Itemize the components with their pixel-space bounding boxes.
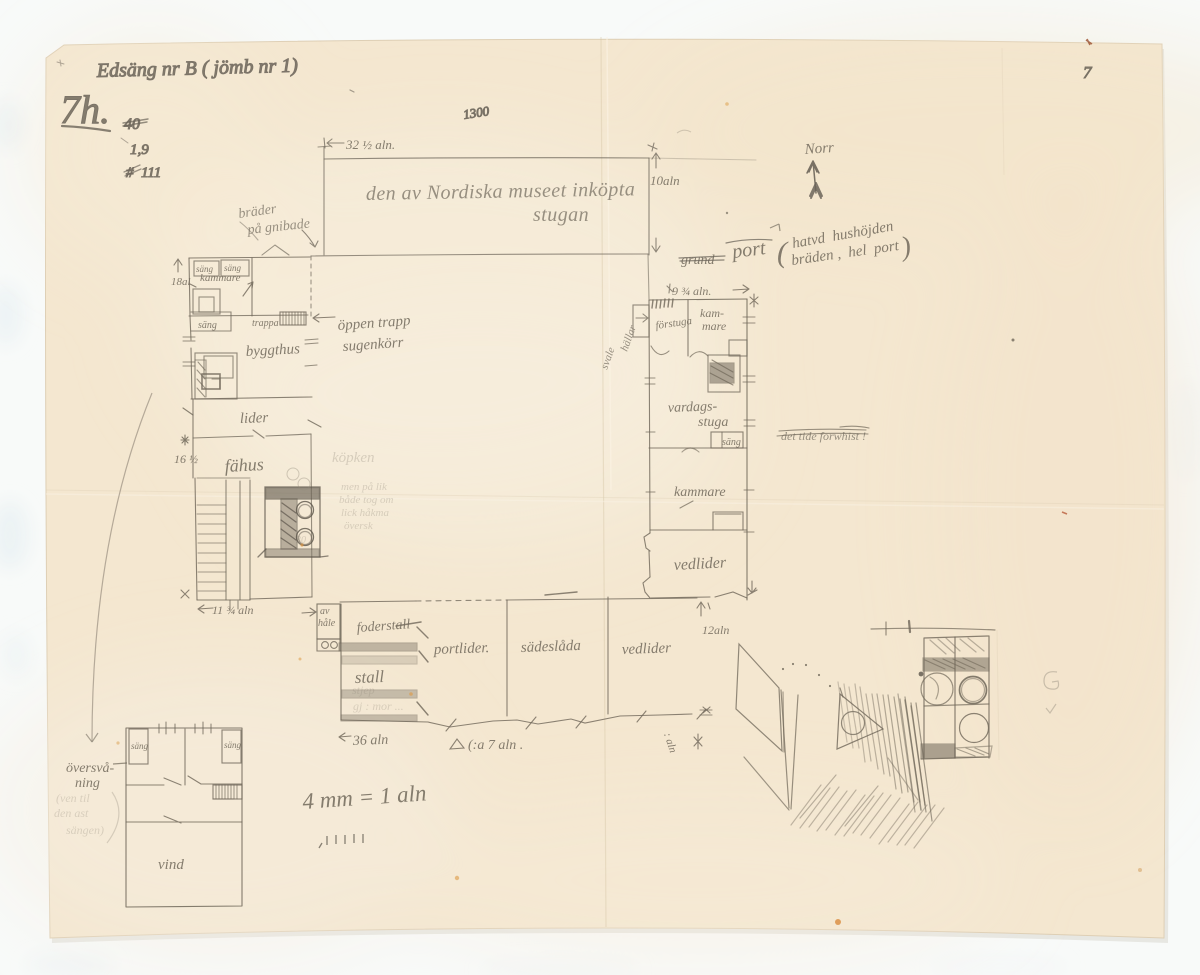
svg-text:Norr: Norr bbox=[803, 140, 834, 158]
svg-text:vedlider: vedlider bbox=[622, 640, 672, 658]
svg-text:32 ½ aln.: 32 ½ aln. bbox=[345, 137, 395, 152]
svg-text:12aln: 12aln bbox=[702, 623, 729, 637]
svg-text:den av Nordiska museet inköpta: den av Nordiska museet inköpta bbox=[366, 178, 636, 205]
svg-text:det tide forwhist !: det tide forwhist ! bbox=[781, 429, 866, 443]
svg-text:(:a 7 aln .: (:a 7 aln . bbox=[468, 738, 523, 753]
svg-text:översvå-: översvå- bbox=[66, 761, 115, 776]
svg-text:stugan: stugan bbox=[533, 204, 589, 226]
svg-text:lick håkma: lick håkma bbox=[341, 507, 389, 519]
svg-text:lider: lider bbox=[240, 410, 269, 427]
svg-text:översk: översk bbox=[344, 520, 374, 532]
svg-text:sängen): sängen) bbox=[66, 823, 104, 837]
svg-text:16 ½: 16 ½ bbox=[174, 452, 198, 466]
svg-text:stjep: stjep bbox=[352, 683, 375, 697]
svg-text:(ven til: (ven til bbox=[56, 791, 90, 805]
svg-text:mare: mare bbox=[702, 319, 727, 333]
svg-text:kammare: kammare bbox=[200, 272, 241, 284]
svg-text:både tog om: både tog om bbox=[339, 494, 393, 506]
svg-text:vardags-: vardags- bbox=[668, 399, 718, 416]
svg-text:sädeslåda: sädeslåda bbox=[521, 638, 582, 656]
svg-text:av: av bbox=[320, 606, 330, 617]
svg-text:håle: håle bbox=[318, 618, 336, 629]
svg-text:säng: säng bbox=[131, 741, 149, 751]
svg-text:vedlider: vedlider bbox=[673, 554, 727, 574]
svg-text:36 aln: 36 aln bbox=[352, 733, 389, 749]
svg-text:10aln: 10aln bbox=[650, 173, 680, 188]
svg-text:säng: säng bbox=[224, 740, 242, 750]
svg-text:18al: 18al bbox=[171, 276, 191, 288]
svg-text:vind: vind bbox=[158, 857, 184, 873]
svg-text:stuga: stuga bbox=[698, 415, 728, 430]
svg-text:kammare: kammare bbox=[674, 485, 726, 500]
svg-text:den ast: den ast bbox=[54, 806, 89, 820]
svg-text:men på lik: men på lik bbox=[341, 481, 388, 493]
svg-text:port: port bbox=[729, 237, 767, 263]
svg-text:kam-: kam- bbox=[700, 306, 724, 320]
svg-text:11 ¾ aln: 11 ¾ aln bbox=[212, 603, 253, 617]
svg-text:ning: ning bbox=[75, 776, 100, 791]
svg-text:portlider.: portlider. bbox=[433, 640, 490, 658]
svg-text:byggthus: byggthus bbox=[245, 341, 300, 360]
svg-text:1,9: 1,9 bbox=[130, 142, 149, 158]
svg-text:köpken: köpken bbox=[332, 450, 374, 466]
svg-text:fähus: fähus bbox=[224, 454, 264, 476]
svg-text:gj : mor ...: gj : mor ... bbox=[353, 699, 404, 713]
svg-text:säng: säng bbox=[722, 437, 741, 448]
svg-text:30: 30 bbox=[295, 535, 306, 546]
svg-text:trappa: trappa bbox=[252, 318, 279, 329]
svg-text:9 ¾ aln.: 9 ¾ aln. bbox=[672, 284, 711, 298]
svg-text:säng: säng bbox=[198, 320, 217, 331]
